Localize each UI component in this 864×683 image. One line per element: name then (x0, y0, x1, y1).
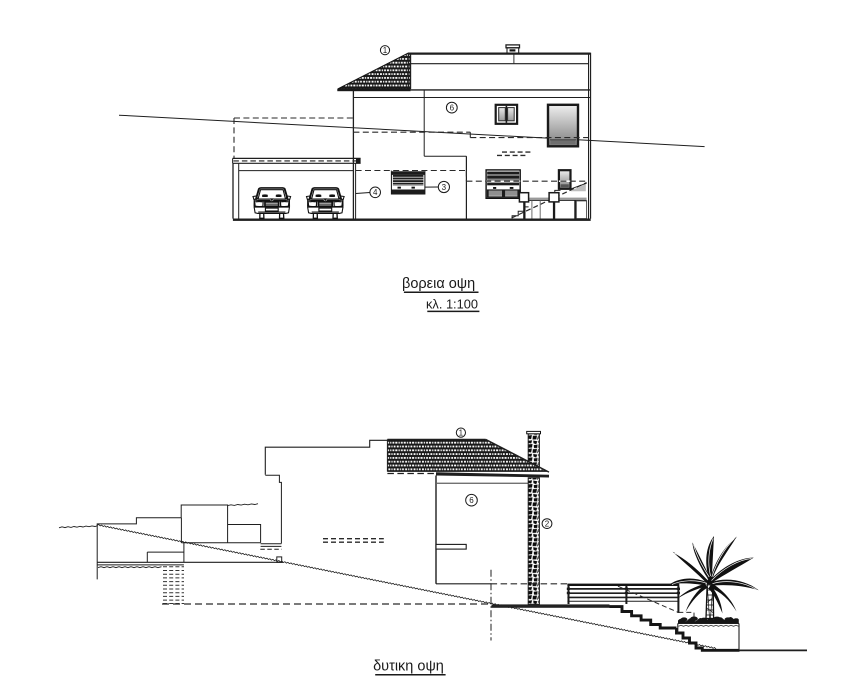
svg-text:4: 4 (373, 188, 378, 197)
svg-text:2: 2 (545, 519, 550, 528)
svg-text:3: 3 (442, 183, 447, 192)
svg-text:6: 6 (469, 496, 474, 505)
svg-text:1: 1 (459, 428, 464, 437)
svg-text:6: 6 (450, 103, 455, 112)
svg-text:βορεια οψη: βορεια οψη (402, 276, 475, 292)
svg-text:1: 1 (383, 46, 388, 55)
svg-text:δυτικη οψη: δυτικη οψη (373, 658, 444, 674)
svg-text:κλ. 1:100: κλ. 1:100 (426, 296, 478, 311)
